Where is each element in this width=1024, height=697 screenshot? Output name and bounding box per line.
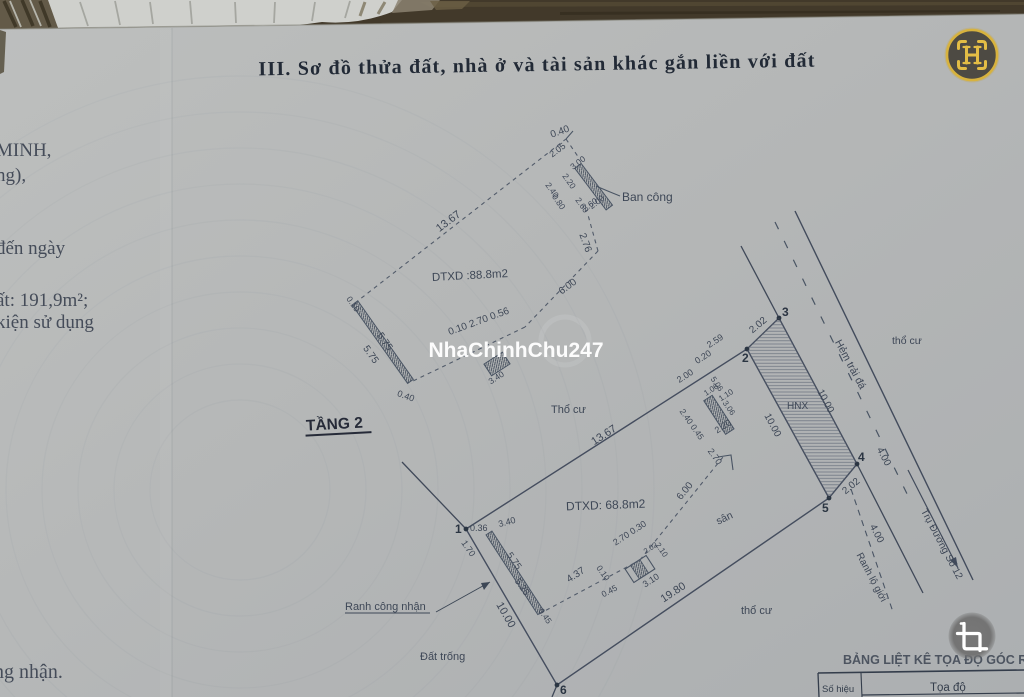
- svg-text:đến ngày: đến ngày: [0, 238, 66, 259]
- svg-text:2: 2: [742, 351, 749, 365]
- svg-text:4: 4: [858, 450, 865, 464]
- svg-text:Số hiệu: Số hiệu: [822, 684, 854, 695]
- svg-text:Đất trống: Đất trống: [420, 651, 465, 663]
- svg-text:Tọa độ: Tọa độ: [930, 682, 966, 694]
- svg-text:3: 3: [782, 305, 789, 319]
- svg-text:kiện sử dụng: kiện sử dụng: [0, 312, 94, 333]
- svg-text:BẢNG LIỆT KÊ TỌA ĐỘ GÓC R: BẢNG LIỆT KÊ TỌA ĐỘ GÓC R: [843, 652, 1024, 667]
- svg-text:0.36: 0.36: [470, 523, 488, 533]
- svg-text:HNX: HNX: [787, 401, 808, 412]
- svg-text:5: 5: [822, 501, 829, 515]
- svg-text:1: 1: [455, 522, 462, 536]
- svg-text:TẦNG 2: TẦNG 2: [306, 415, 364, 435]
- svg-text:ng nhận.: ng nhận.: [0, 661, 63, 683]
- svg-text:Ban công: Ban công: [622, 190, 673, 204]
- svg-text:DTXD: 68.8m2: DTXD: 68.8m2: [566, 497, 646, 514]
- svg-text:NhaChinhChu247: NhaChinhChu247: [428, 339, 603, 362]
- svg-text:6: 6: [560, 683, 567, 697]
- svg-text:Ranh công nhận: Ranh công nhận: [345, 601, 426, 613]
- svg-text:Thổ cư: Thổ cư: [551, 404, 587, 416]
- svg-text:ng),: ng),: [0, 165, 26, 186]
- svg-text:thổ cư: thổ cư: [892, 335, 922, 347]
- svg-text:thổ cư: thổ cư: [741, 605, 773, 617]
- svg-text:ất: 191,9m²;: ất: 191,9m²;: [0, 290, 88, 311]
- svg-text:MINH,: MINH,: [0, 140, 51, 161]
